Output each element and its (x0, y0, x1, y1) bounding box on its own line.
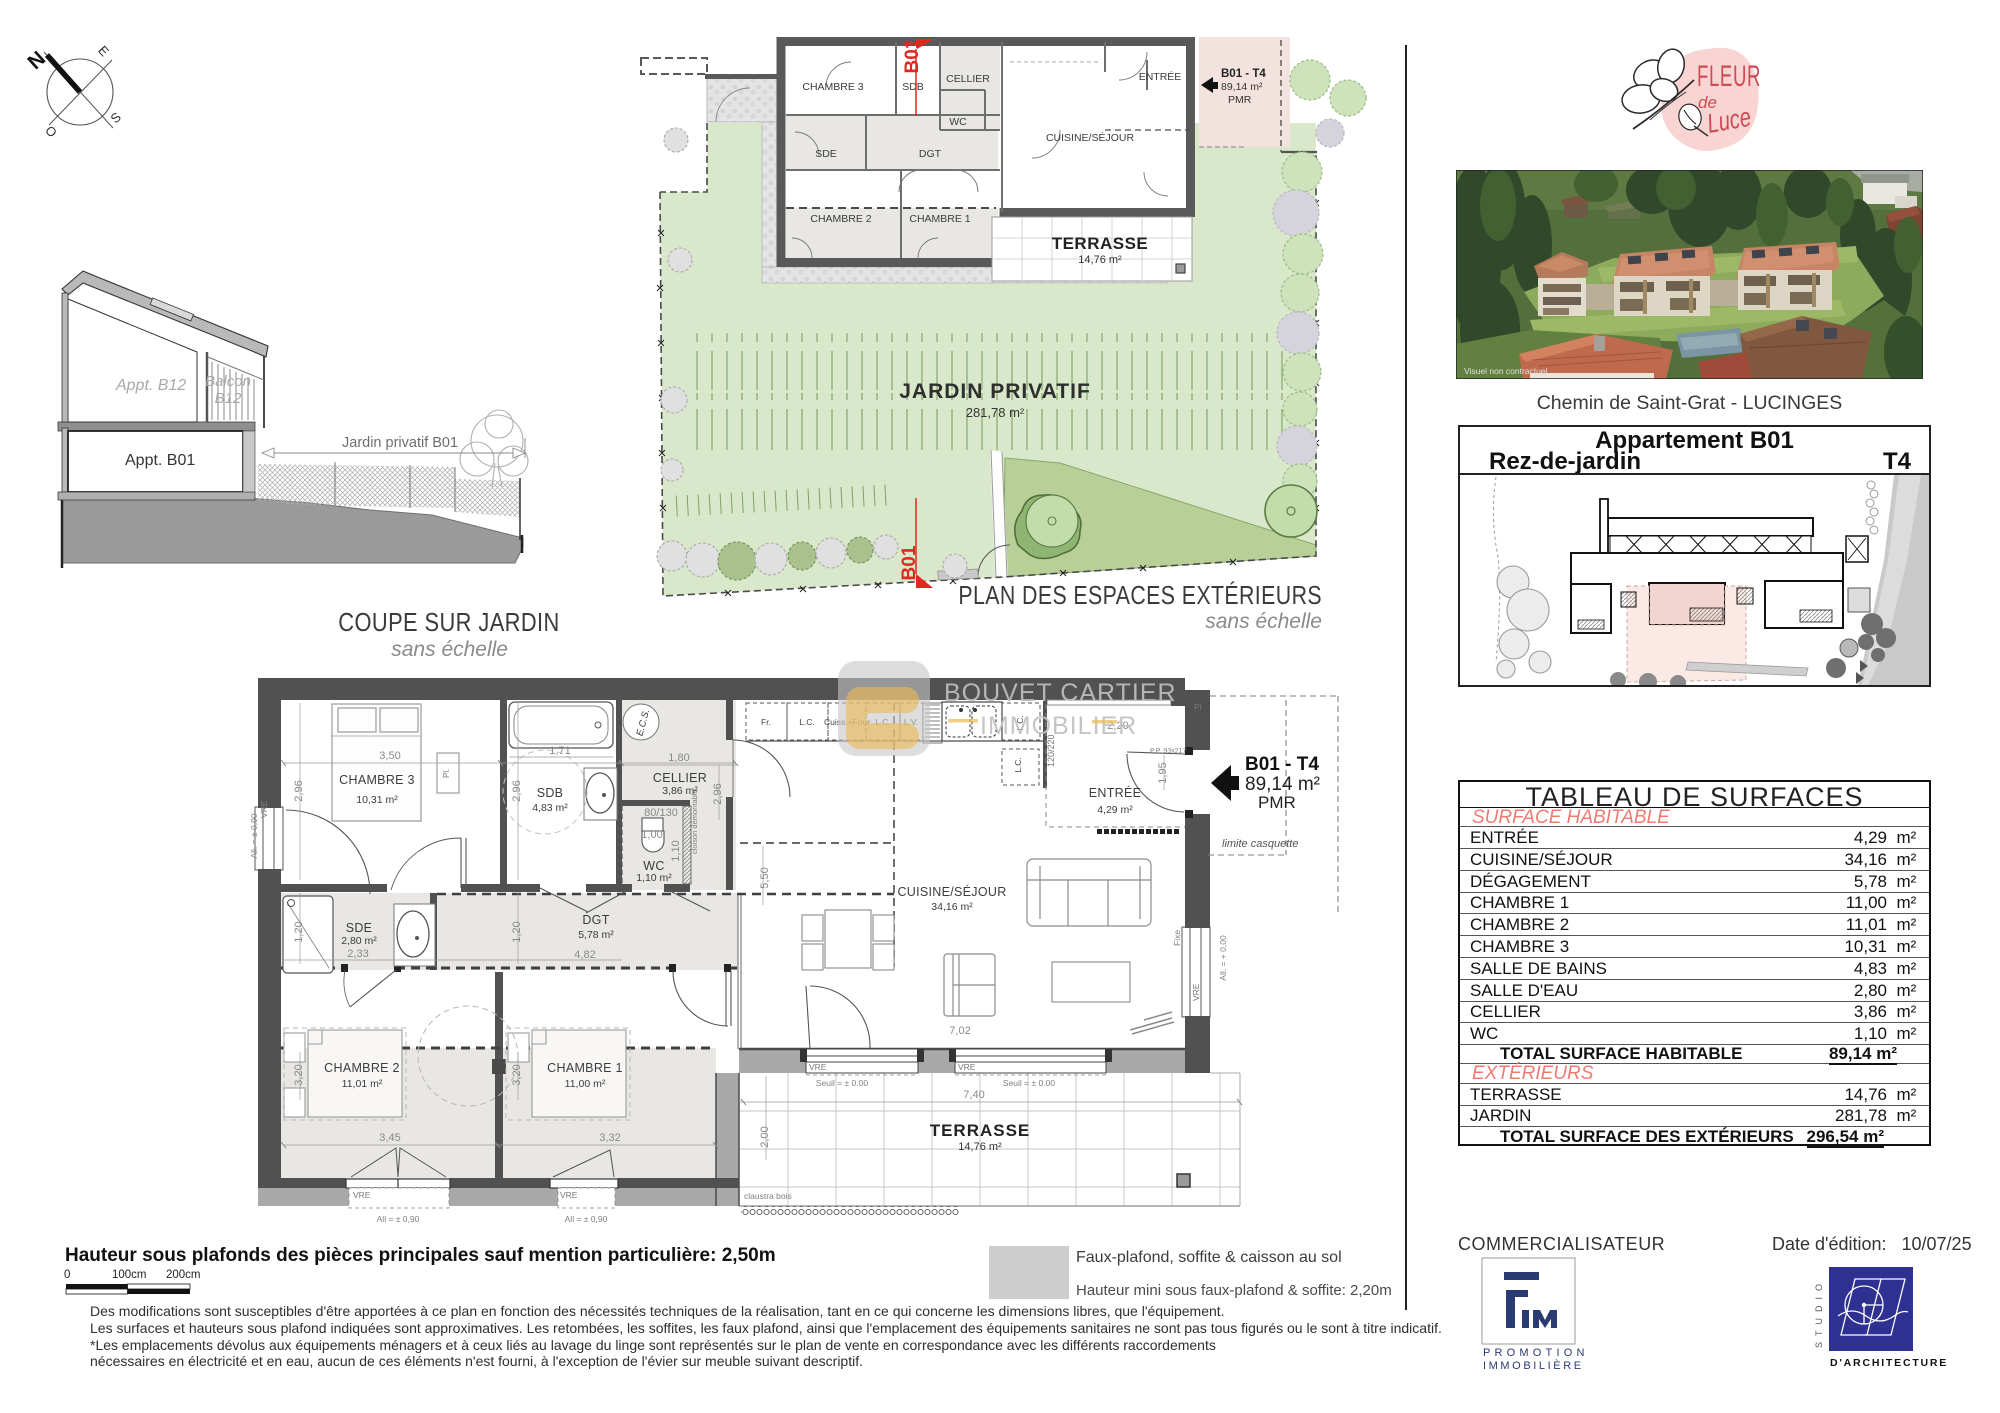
svg-text:VRE: VRE (958, 1062, 976, 1072)
svg-text:3,20: 3,20 (293, 1064, 305, 1085)
svg-text:100cm: 100cm (112, 1269, 147, 1281)
svg-text:1,10: 1,10 (670, 840, 682, 861)
svg-text:Appt. B12: Appt. B12 (115, 377, 186, 394)
svg-text:3,32: 3,32 (599, 1132, 620, 1144)
svg-text:All. = + 0,00: All. = + 0,00 (1218, 935, 1228, 981)
svg-text:All = ± 0,90: All = ± 0,90 (377, 1214, 420, 1224)
svg-text:0: 0 (64, 1269, 70, 1281)
svg-text:VRE: VRE (809, 1062, 827, 1072)
svg-text:4,82: 4,82 (574, 949, 595, 961)
svg-text:Pi: Pi (1194, 702, 1202, 712)
svg-text:L.C.: L.C. (799, 717, 815, 727)
svg-text:Fixe: Fixe (1172, 930, 1182, 946)
svg-text:34,16 m²: 34,16 m² (931, 901, 973, 913)
svg-text:1,80: 1,80 (668, 752, 689, 764)
svg-text:89,14 m²: 89,14 m² (1221, 81, 1263, 93)
svg-text:1,71: 1,71 (549, 745, 570, 757)
svg-text:PLAN DES ESPACES EXTÉRIEURS: PLAN DES ESPACES EXTÉRIEURS (958, 581, 1322, 611)
svg-text:Seuil = ± 0.00: Seuil = ± 0.00 (816, 1078, 868, 1088)
svg-text:IMMOBILIÈRE: IMMOBILIÈRE (1483, 1359, 1584, 1372)
svg-text:DGT: DGT (919, 148, 942, 160)
svg-text:2,96: 2,96 (511, 780, 523, 801)
svg-text:3,45: 3,45 (379, 1132, 400, 1144)
svg-text:4,29 m²: 4,29 m² (1097, 804, 1133, 816)
svg-text:CHAMBRE 2: CHAMBRE 2 (324, 1061, 400, 1075)
svg-text:N: N (24, 47, 51, 74)
svg-text:2,00: 2,00 (759, 1126, 771, 1147)
svg-text:200cm: 200cm (166, 1269, 201, 1281)
svg-text:SDB: SDB (902, 81, 924, 93)
svg-text:2,80 m²: 2,80 m² (341, 935, 377, 947)
svg-text:2,96: 2,96 (293, 780, 305, 801)
svg-text:All = ± 0,90: All = ± 0,90 (565, 1214, 608, 1224)
svg-text:SDE: SDE (346, 921, 373, 935)
svg-text:VRE: VRE (560, 1190, 578, 1200)
svg-text:B01 - T4: B01 - T4 (1245, 754, 1319, 775)
svg-text:TERRASSE: TERRASSE (930, 1121, 1031, 1140)
svg-text:cloison démontable: cloison démontable (690, 789, 699, 854)
svg-text:281,78 m²: 281,78 m² (966, 405, 1025, 420)
svg-text:CHAMBRE 2: CHAMBRE 2 (810, 213, 871, 225)
svg-text:ENTRÉE: ENTRÉE (1089, 785, 1142, 800)
svg-text:D'ARCHITECTURE: D'ARCHITECTURE (1830, 1357, 1948, 1369)
svg-text:O: O (42, 123, 60, 141)
svg-text:VRE: VRE (259, 800, 269, 818)
svg-text:3,20: 3,20 (511, 1064, 523, 1085)
svg-text:claustra bois: claustra bois (744, 1191, 792, 1201)
svg-text:5,50: 5,50 (759, 867, 771, 888)
svg-text:1,00: 1,00 (641, 829, 662, 841)
svg-text:E: E (95, 43, 112, 60)
svg-text:11,01 m²: 11,01 m² (342, 1078, 383, 1090)
svg-text:Balcon: Balcon (205, 373, 251, 390)
svg-text:VRE: VRE (1191, 983, 1201, 1001)
svg-text:COUPE SUR JARDIN: COUPE SUR JARDIN (338, 608, 559, 637)
svg-text:JARDIN PRIVATIF: JARDIN PRIVATIF (899, 380, 1091, 403)
svg-text:CELLIER: CELLIER (946, 73, 990, 85)
svg-text:PROMOTION: PROMOTION (1483, 1347, 1589, 1359)
svg-text:VRE: VRE (353, 1190, 371, 1200)
svg-text:STUDIO: STUDIO (1814, 1278, 1824, 1348)
svg-text:14,76 m²: 14,76 m² (958, 1141, 1002, 1153)
svg-text:BOUVET CARTIER: BOUVET CARTIER (944, 679, 1177, 707)
svg-text:1,95: 1,95 (1157, 762, 1169, 783)
svg-text:sans échelle: sans échelle (1205, 610, 1322, 633)
svg-text:Jardin privatif B01: Jardin privatif B01 (342, 435, 458, 451)
svg-text:WC: WC (643, 859, 664, 873)
svg-text:2,96: 2,96 (712, 783, 724, 804)
svg-text:89,14 m²: 89,14 m² (1245, 774, 1320, 795)
svg-text:7,40: 7,40 (963, 1089, 984, 1101)
svg-text:Fr.: Fr. (761, 717, 771, 727)
svg-text:CHAMBRE 3: CHAMBRE 3 (802, 81, 863, 93)
svg-text:CHAMBRE 3: CHAMBRE 3 (339, 773, 415, 787)
svg-text:B12: B12 (215, 390, 242, 407)
svg-text:1,20: 1,20 (511, 921, 523, 942)
svg-text:CUISINE/SÉJOUR: CUISINE/SÉJOUR (897, 884, 1006, 899)
svg-text:1,10 m²: 1,10 m² (636, 872, 672, 884)
svg-text:7,02: 7,02 (949, 1025, 970, 1037)
svg-text:SDE: SDE (815, 148, 837, 160)
svg-text:80/130: 80/130 (644, 807, 678, 819)
svg-text:S: S (107, 109, 124, 126)
svg-text:CUISINE/SÉJOUR: CUISINE/SÉJOUR (1046, 131, 1135, 144)
svg-text:WC: WC (949, 116, 967, 128)
svg-text:4,83 m²: 4,83 m² (532, 802, 568, 814)
svg-text:CELLIER: CELLIER (653, 771, 707, 785)
svg-text:1,20: 1,20 (293, 921, 305, 942)
svg-text:ENTRÉE: ENTRÉE (1139, 70, 1182, 83)
svg-text:PMR: PMR (1228, 94, 1252, 106)
svg-text:10,31 m²: 10,31 m² (356, 794, 398, 806)
svg-text:3,50: 3,50 (379, 750, 400, 762)
svg-text:TERRASSE: TERRASSE (1052, 234, 1149, 253)
svg-text:All. = ± 0,90: All. = ± 0,90 (249, 813, 259, 858)
svg-text:14,76 m²: 14,76 m² (1078, 254, 1122, 266)
svg-text:Seuil = ± 0.00: Seuil = ± 0.00 (1003, 1078, 1055, 1088)
svg-text:DGT: DGT (582, 913, 609, 927)
svg-text:2,33: 2,33 (347, 948, 368, 960)
svg-text:B01 - T4: B01 - T4 (1221, 68, 1266, 80)
svg-text:PMR: PMR (1258, 793, 1296, 812)
svg-text:11,00 m²: 11,00 m² (565, 1078, 606, 1090)
svg-text:CHAMBRE 1: CHAMBRE 1 (547, 1061, 623, 1075)
svg-text:SDB: SDB (537, 786, 564, 800)
svg-text:Pl.: Pl. (442, 769, 451, 778)
svg-text:IMMOBILIER: IMMOBILIER (980, 712, 1137, 740)
svg-text:Visuel non contractuel: Visuel non contractuel (1464, 366, 1548, 376)
svg-text:3,86 m²: 3,86 m² (662, 785, 698, 797)
svg-text:limite casquette: limite casquette (1222, 838, 1298, 850)
svg-text:CHAMBRE 1: CHAMBRE 1 (909, 213, 970, 225)
svg-text:Appt. B01: Appt. B01 (125, 452, 195, 469)
svg-text:5,78 m²: 5,78 m² (578, 929, 614, 941)
svg-text:FLEUR: FLEUR (1697, 60, 1761, 94)
